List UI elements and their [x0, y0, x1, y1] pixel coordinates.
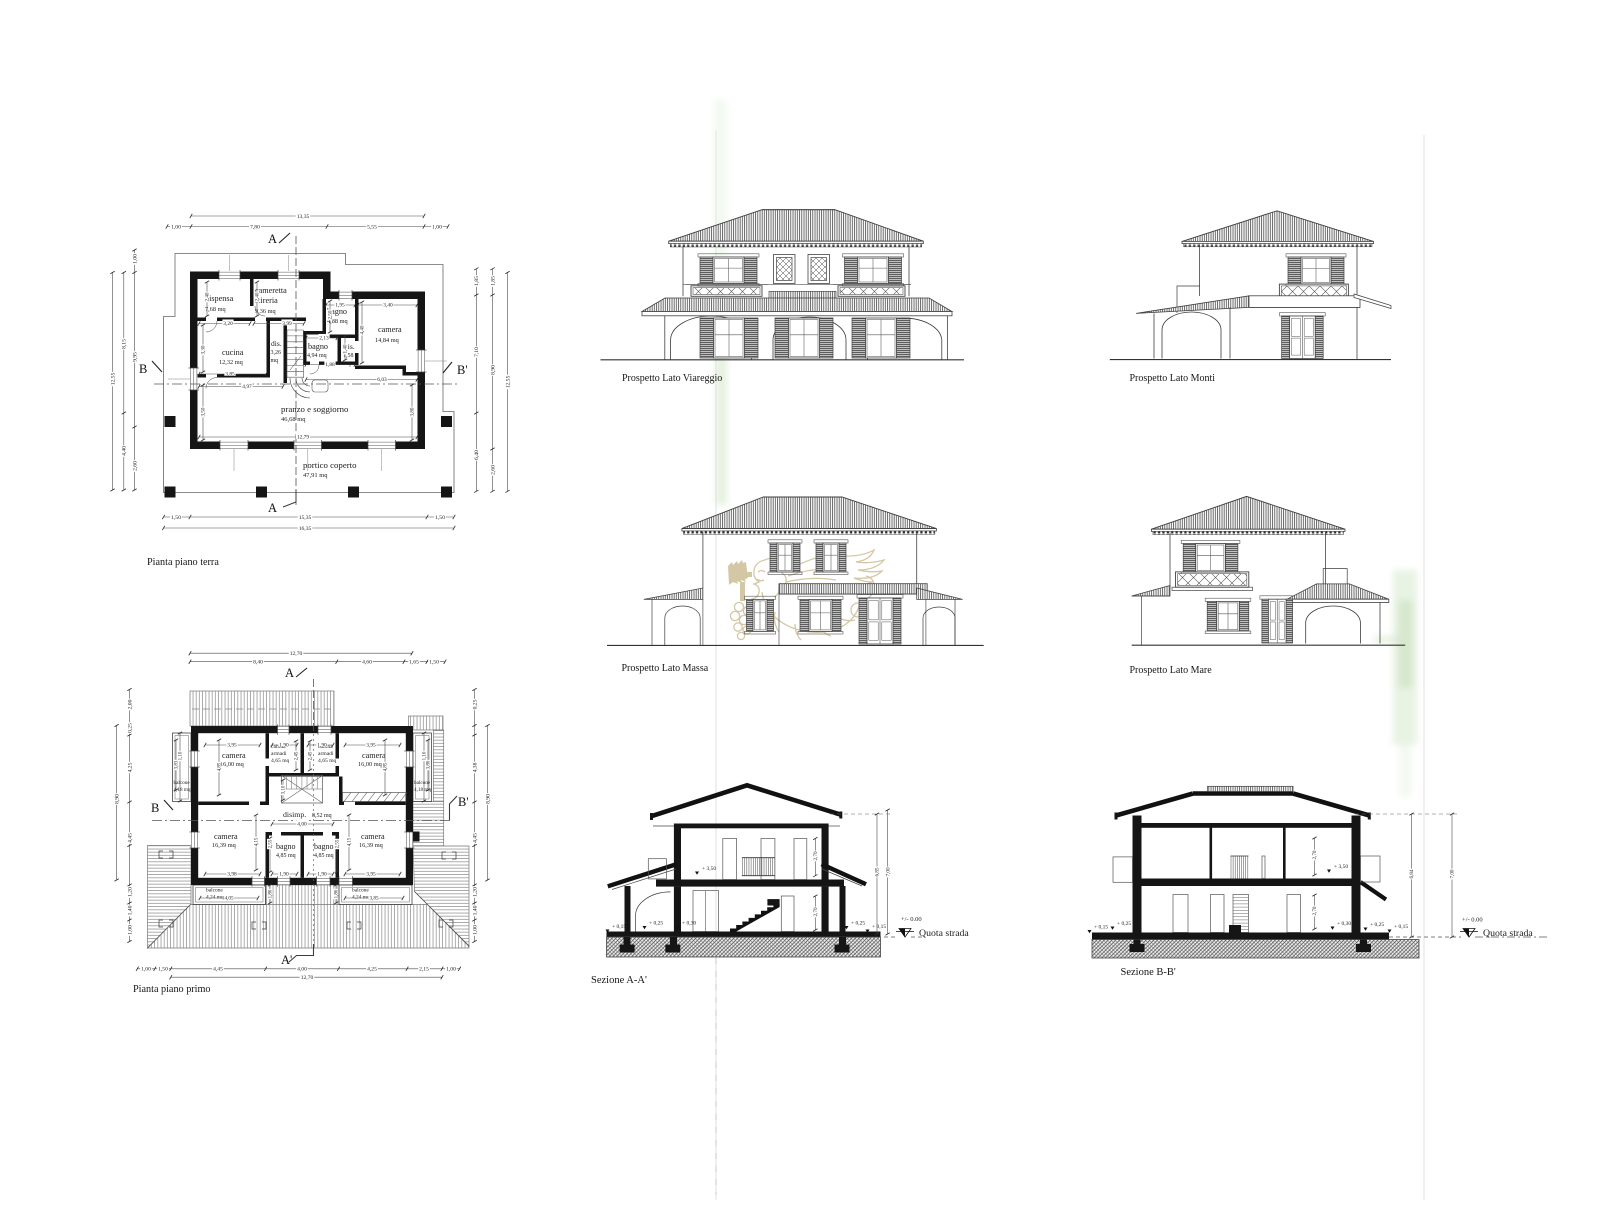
svg-text:4,00: 4,00	[297, 967, 307, 973]
svg-text:3,98: 3,98	[227, 872, 237, 878]
svg-text:46,68 mq: 46,68 mq	[281, 416, 306, 423]
svg-text:+ 0,30: + 0,30	[682, 921, 696, 927]
svg-text:bagno: bagno	[314, 842, 334, 851]
svg-text:4,24 mq: 4,24 mq	[206, 895, 224, 901]
svg-text:4,85: 4,85	[384, 762, 389, 771]
svg-text:3,99: 3,99	[282, 321, 292, 327]
svg-text:camera: camera	[362, 751, 386, 760]
svg-text:balcone: balcone	[206, 888, 223, 894]
svg-text:3,95: 3,95	[227, 743, 237, 749]
svg-text:4,15: 4,15	[255, 837, 260, 846]
svg-text:cucina: cucina	[222, 348, 244, 357]
svg-text:4,60: 4,60	[362, 659, 372, 665]
svg-text:+ 0,25: + 0,25	[851, 921, 865, 927]
svg-text:+ 0,25: + 0,25	[1117, 921, 1131, 927]
svg-text:4,38: 4,38	[472, 762, 478, 772]
svg-text:camera: camera	[222, 751, 246, 760]
svg-text:47,91 mq: 47,91 mq	[303, 472, 328, 479]
svg-text:12,55: 12,55	[110, 373, 116, 386]
svg-text:4,25: 4,25	[127, 762, 133, 772]
svg-text:1,50: 1,50	[171, 515, 181, 521]
svg-text:2,55: 2,55	[269, 839, 274, 848]
svg-text:8,15: 8,15	[122, 339, 128, 349]
svg-text:9,36 mq: 9,36 mq	[255, 308, 276, 315]
svg-text:1,40: 1,40	[343, 344, 349, 353]
svg-text:4,45: 4,45	[472, 833, 478, 843]
svg-text:2,70: 2,70	[1312, 906, 1318, 915]
svg-text:1,95: 1,95	[335, 303, 345, 309]
svg-text:4,24 mq: 4,24 mq	[352, 895, 370, 901]
svg-text:1,20: 1,20	[472, 887, 478, 897]
svg-text:+ 3,50: + 3,50	[702, 866, 716, 872]
svg-text:camera: camera	[378, 325, 402, 334]
svg-text:bagno: bagno	[308, 342, 328, 351]
svg-text:6,84: 6,84	[1409, 869, 1415, 878]
svg-text:armadi: armadi	[271, 751, 287, 757]
svg-text:3,10: 3,10	[282, 785, 287, 794]
svg-text:4,97: 4,97	[242, 384, 252, 390]
svg-text:A: A	[268, 501, 277, 515]
svg-text:Quota strada: Quota strada	[919, 928, 969, 939]
svg-text:pranzo e soggiorno: pranzo e soggiorno	[281, 404, 349, 414]
svg-text:1,40: 1,40	[472, 905, 478, 915]
svg-text:+/- 0.00: +/- 0.00	[901, 916, 922, 923]
svg-text:1,00: 1,00	[171, 224, 181, 230]
svg-text:disimp.: disimp.	[283, 810, 306, 819]
svg-text:2,40: 2,40	[205, 292, 211, 301]
svg-text:mq: mq	[271, 358, 279, 364]
svg-text:1,50: 1,50	[435, 515, 445, 521]
svg-text:balcone: balcone	[352, 888, 369, 894]
svg-text:camera: camera	[214, 832, 238, 841]
svg-text:Sezione B-B': Sezione B-B'	[1121, 967, 1176, 978]
svg-text:2,70: 2,70	[1312, 850, 1318, 859]
svg-text:3,30: 3,30	[201, 345, 207, 354]
svg-text:1,90: 1,90	[279, 872, 289, 878]
svg-text:A: A	[268, 232, 277, 246]
svg-text:12,55: 12,55	[505, 376, 511, 389]
svg-text:9,95: 9,95	[132, 352, 138, 362]
svg-text:14,84 mq: 14,84 mq	[375, 337, 400, 344]
svg-text:1,85: 1,85	[474, 276, 480, 286]
svg-text:1,80: 1,80	[335, 889, 340, 898]
svg-text:2,60: 2,60	[490, 465, 496, 475]
svg-text:7,10: 7,10	[474, 347, 480, 357]
svg-text:1,00: 1,00	[472, 925, 478, 935]
svg-text:13,35: 13,35	[297, 214, 310, 220]
svg-text:12,70: 12,70	[301, 975, 314, 981]
svg-text:3,80: 3,80	[427, 760, 432, 769]
svg-text:15,35: 15,35	[299, 515, 312, 521]
svg-text:1,65: 1,65	[409, 659, 419, 665]
svg-text:+ 0,25: + 0,25	[1370, 922, 1384, 928]
svg-text:16,39 mq: 16,39 mq	[359, 842, 384, 849]
svg-text:7,80: 7,80	[250, 224, 260, 230]
svg-text:8,90: 8,90	[485, 794, 491, 804]
svg-text:1,00: 1,00	[432, 224, 442, 230]
svg-text:12,70: 12,70	[290, 651, 303, 657]
svg-text:1,40: 1,40	[127, 905, 133, 915]
svg-text:3,85: 3,85	[225, 372, 235, 378]
svg-text:mq: mq	[343, 361, 351, 367]
svg-text:+ 3,50: + 3,50	[1334, 864, 1348, 870]
svg-text:6,40: 6,40	[474, 450, 480, 460]
svg-text:Prospetto Lato Mare: Prospetto Lato Mare	[1130, 665, 1213, 676]
svg-text:6,85: 6,85	[875, 867, 881, 876]
svg-text:3,83: 3,83	[175, 760, 180, 769]
svg-text:+/- 0.00: +/- 0.00	[1462, 917, 1483, 924]
svg-text:3,95: 3,95	[366, 743, 376, 749]
svg-text:camera: camera	[361, 832, 385, 841]
svg-text:6,03: 6,03	[377, 377, 387, 383]
svg-text:+ 0,25: + 0,25	[649, 921, 663, 927]
svg-text:1,10: 1,10	[423, 751, 428, 760]
svg-text:4,85 mq: 4,85 mq	[314, 853, 334, 859]
svg-text:3,26: 3,26	[271, 350, 282, 356]
svg-text:portico coperto: portico coperto	[303, 460, 357, 470]
svg-text:1,00: 1,00	[132, 254, 138, 264]
svg-text:A: A	[285, 666, 294, 680]
svg-text:4,85 mq: 4,85 mq	[276, 853, 296, 859]
svg-text:Prospetto Lato Monti: Prospetto Lato Monti	[1130, 373, 1216, 384]
svg-text:4,45: 4,45	[213, 967, 223, 973]
svg-text:balcone: balcone	[414, 780, 431, 786]
svg-text:3,95: 3,95	[366, 872, 376, 878]
svg-text:8,52 mq: 8,52 mq	[312, 813, 332, 819]
svg-text:1,50: 1,50	[429, 659, 439, 665]
svg-text:4,65 mq: 4,65 mq	[318, 758, 337, 764]
svg-text:3,40: 3,40	[383, 303, 393, 309]
svg-text:Sezione A-A': Sezione A-A'	[591, 975, 647, 986]
svg-text:0,25: 0,25	[472, 699, 478, 709]
svg-text:0,25: 0,25	[127, 723, 133, 733]
svg-text:3,85: 3,85	[369, 896, 378, 902]
svg-text:+ 0,15: + 0,15	[872, 924, 886, 930]
svg-text:4,25: 4,25	[367, 967, 377, 973]
svg-text:4,45: 4,45	[127, 833, 133, 843]
svg-text:bagno: bagno	[276, 842, 296, 851]
svg-text:1,90: 1,90	[279, 743, 289, 749]
svg-text:1,90: 1,90	[317, 743, 327, 749]
svg-text:4,94 mq: 4,94 mq	[307, 353, 327, 359]
svg-text:2,13: 2,13	[319, 336, 329, 342]
svg-text:12,32 mq: 12,32 mq	[219, 359, 244, 366]
svg-text:Pianta piano primo: Pianta piano primo	[133, 984, 211, 995]
svg-text:2,15: 2,15	[419, 967, 429, 973]
svg-text:4,65 mq: 4,65 mq	[271, 758, 290, 764]
svg-text:8,90: 8,90	[490, 365, 496, 375]
svg-text:5,55: 5,55	[367, 224, 377, 230]
svg-text:4,15: 4,15	[348, 837, 353, 846]
svg-text:Pianta piano terra: Pianta piano terra	[147, 557, 219, 568]
svg-text:1,85: 1,85	[490, 276, 496, 286]
svg-text:B: B	[151, 801, 159, 815]
svg-text:2,50: 2,50	[328, 310, 334, 319]
svg-text:1,00: 1,00	[446, 967, 456, 973]
svg-text:2,45: 2,45	[295, 751, 300, 760]
svg-text:16,00 mq: 16,00 mq	[220, 761, 245, 768]
svg-text:dis.: dis.	[271, 339, 282, 348]
svg-text:1,50: 1,50	[158, 967, 168, 973]
svg-text:+ 0,15: + 0,15	[1394, 924, 1408, 930]
svg-text:4,00: 4,00	[297, 822, 307, 828]
svg-text:3,50: 3,50	[201, 407, 207, 416]
svg-text:B': B'	[458, 795, 469, 809]
svg-text:8,90: 8,90	[114, 794, 120, 804]
svg-text:16,00 mq: 16,00 mq	[358, 761, 383, 768]
svg-text:2,70: 2,70	[813, 851, 819, 860]
svg-text:Prospetto Lato Viareggio: Prospetto Lato Viareggio	[622, 373, 722, 384]
svg-text:4,05: 4,05	[224, 896, 233, 902]
svg-text:3,20: 3,20	[223, 321, 233, 327]
svg-text:2,45: 2,45	[309, 751, 314, 760]
svg-text:2,40: 2,40	[255, 292, 261, 301]
svg-text:4,40: 4,40	[122, 446, 128, 456]
svg-text:4,85: 4,85	[218, 762, 223, 771]
svg-text:3,80: 3,80	[410, 407, 416, 416]
svg-text:1,80: 1,80	[269, 889, 274, 898]
svg-text:2,55: 2,55	[336, 839, 341, 848]
svg-text:+ 0,30: + 0,30	[1337, 921, 1351, 927]
svg-text:1,90: 1,90	[317, 872, 327, 878]
svg-text:1,88: 1,88	[325, 362, 335, 368]
svg-text:1,00: 1,00	[127, 925, 133, 935]
svg-text:armadi: armadi	[318, 751, 334, 757]
svg-text:4,40: 4,40	[360, 325, 366, 334]
svg-text:1,00: 1,00	[141, 967, 151, 973]
svg-text:12,79: 12,79	[297, 435, 309, 441]
svg-text:2,00: 2,00	[127, 699, 133, 709]
svg-text:8,40: 8,40	[253, 659, 263, 665]
svg-text:+ 0,15: + 0,15	[1094, 925, 1108, 931]
svg-text:7,68 mq: 7,68 mq	[205, 306, 226, 313]
svg-text:B: B	[139, 362, 147, 376]
svg-text:2,70: 2,70	[813, 907, 819, 916]
svg-text:7,00: 7,00	[885, 867, 891, 876]
svg-text:2,60: 2,60	[132, 461, 138, 471]
svg-text:+ 0,15: + 0,15	[612, 924, 626, 930]
svg-text:16,35: 16,35	[299, 526, 312, 532]
svg-text:Prospetto Lato Massa: Prospetto Lato Massa	[622, 663, 709, 674]
svg-text:1,10: 1,10	[179, 751, 184, 760]
svg-text:7,00: 7,00	[1450, 869, 1456, 878]
svg-text:16,39 mq: 16,39 mq	[212, 842, 237, 849]
svg-text:B': B'	[457, 363, 468, 377]
svg-text:1,20: 1,20	[127, 887, 133, 897]
